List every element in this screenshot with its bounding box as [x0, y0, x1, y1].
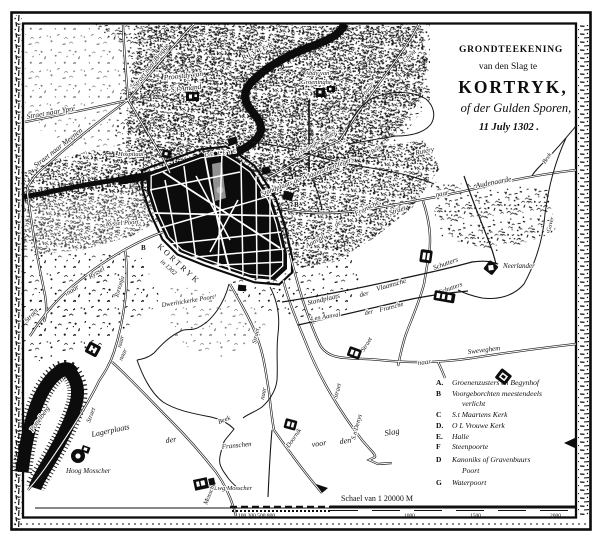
svg-text:Schael van 1 20000 M: Schael van 1 20000 M: [341, 494, 413, 503]
svg-text:100 300 500 800: 100 300 500 800: [238, 513, 275, 519]
svg-text:11 July 1302 .: 11 July 1302 .: [479, 122, 539, 133]
svg-text:Hospitaal: Hospitaal: [117, 151, 144, 158]
svg-text:of der Gulden Sporen,: of der Gulden Sporen,: [461, 101, 572, 115]
svg-text:Poort: Poort: [461, 466, 480, 475]
svg-text:Waterpoort: Waterpoort: [452, 478, 487, 487]
svg-text:Neerlander: Neerlander: [502, 262, 535, 270]
svg-text:B: B: [294, 201, 299, 209]
svg-text:S.t Maartens Kerk: S.t Maartens Kerk: [452, 410, 508, 419]
svg-text:1500: 1500: [470, 513, 481, 519]
svg-text:A.: A.: [436, 378, 443, 387]
svg-text:B: B: [180, 131, 185, 139]
svg-text:Abdy van: Abdy van: [304, 70, 329, 77]
svg-text:Kanoniks of Gravenbuurs: Kanoniks of Gravenbuurs: [451, 455, 531, 464]
svg-text:B: B: [141, 244, 146, 252]
svg-text:Halle: Halle: [451, 432, 470, 441]
svg-text:O L Vrouwe Kerk: O L Vrouwe Kerk: [452, 421, 505, 430]
svg-text:E.: E.: [436, 432, 443, 441]
svg-text:verlicht: verlicht: [462, 399, 486, 408]
svg-text:van den Slag te: van den Slag te: [479, 62, 537, 72]
svg-text:Voorgeborchten meestendeels: Voorgeborchten meestendeels: [452, 389, 542, 398]
svg-text:2000: 2000: [550, 513, 561, 519]
svg-text:Groeninghe: Groeninghe: [301, 79, 332, 86]
svg-text:D.: D.: [436, 421, 443, 430]
svg-text:C: C: [436, 410, 441, 419]
svg-text:Lwg Mosscher: Lwg Mosscher: [213, 485, 253, 492]
svg-text:G: G: [436, 478, 442, 487]
svg-text:F: F: [436, 442, 441, 451]
svg-text:D: D: [436, 455, 442, 464]
svg-text:Steenpoorte: Steenpoorte: [452, 442, 489, 451]
svg-text:B: B: [436, 389, 441, 398]
svg-text:KORTRYK,: KORTRYK,: [458, 77, 568, 97]
svg-text:Hoog Mosscher: Hoog Mosscher: [65, 467, 111, 475]
svg-text:GRONDTEEKENING: GRONDTEEKENING: [459, 45, 563, 55]
svg-text:Groenenzusters en Begynhof: Groenenzusters en Begynhof: [452, 378, 540, 387]
svg-text:naar: naar: [417, 358, 431, 367]
svg-text:1000: 1000: [404, 513, 415, 519]
